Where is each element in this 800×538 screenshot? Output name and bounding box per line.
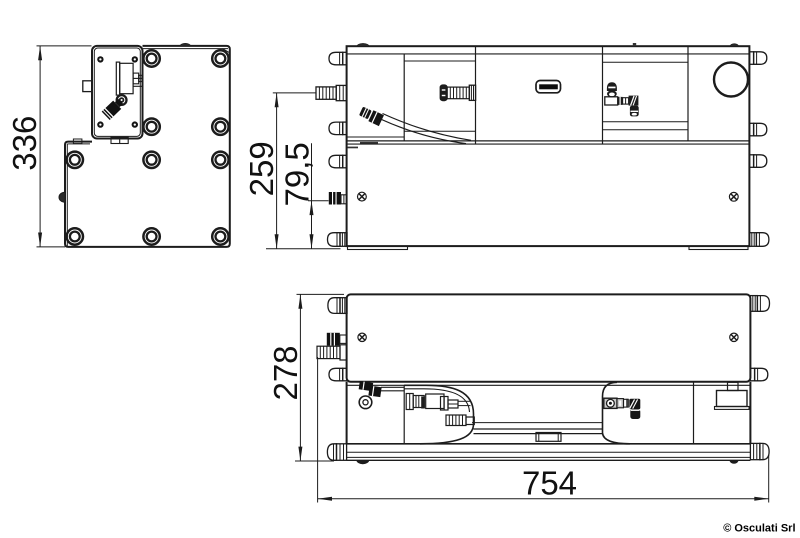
svg-text:79,5: 79,5 — [279, 142, 316, 206]
svg-text:336: 336 — [6, 116, 43, 171]
svg-text:259: 259 — [243, 141, 280, 196]
svg-text:754: 754 — [522, 464, 577, 501]
svg-text:© Osculati Srl: © Osculati Srl — [723, 522, 795, 533]
svg-text:278: 278 — [267, 345, 304, 400]
